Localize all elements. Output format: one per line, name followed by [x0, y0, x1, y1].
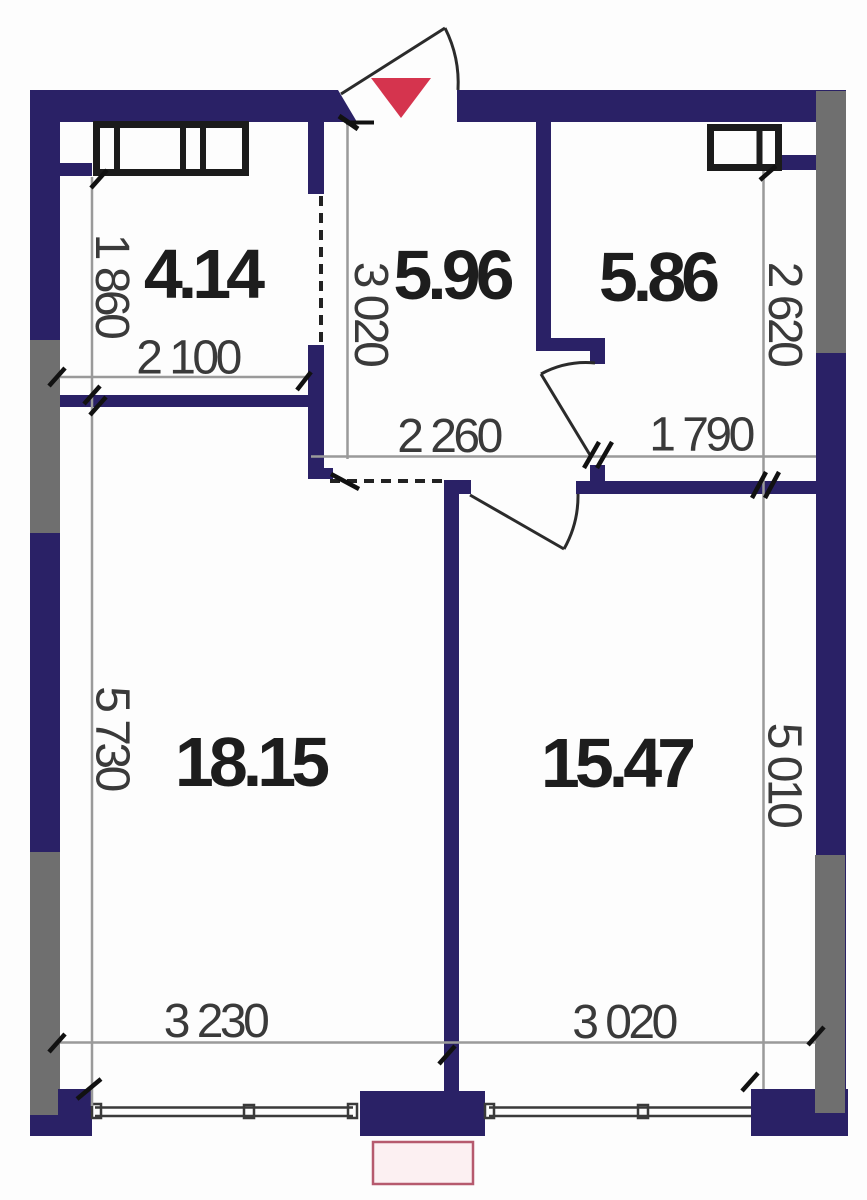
- svg-text:1 860: 1 860: [85, 234, 138, 338]
- svg-text:2 100: 2 100: [136, 332, 240, 385]
- svg-text:4.14: 4.14: [144, 235, 265, 313]
- svg-text:5 010: 5 010: [758, 723, 811, 827]
- svg-text:3 230: 3 230: [164, 995, 268, 1048]
- svg-text:1 790: 1 790: [649, 409, 753, 462]
- svg-text:18.15: 18.15: [175, 723, 328, 801]
- svg-text:3 020: 3 020: [344, 262, 397, 366]
- svg-text:2 620: 2 620: [758, 262, 811, 366]
- svg-text:15.47: 15.47: [541, 724, 693, 802]
- svg-text:2 260: 2 260: [397, 410, 501, 463]
- svg-text:5 730: 5 730: [86, 686, 139, 790]
- svg-text:3 020: 3 020: [572, 996, 676, 1049]
- svg-text:5.86: 5.86: [599, 238, 718, 316]
- svg-text:5.96: 5.96: [393, 236, 512, 314]
